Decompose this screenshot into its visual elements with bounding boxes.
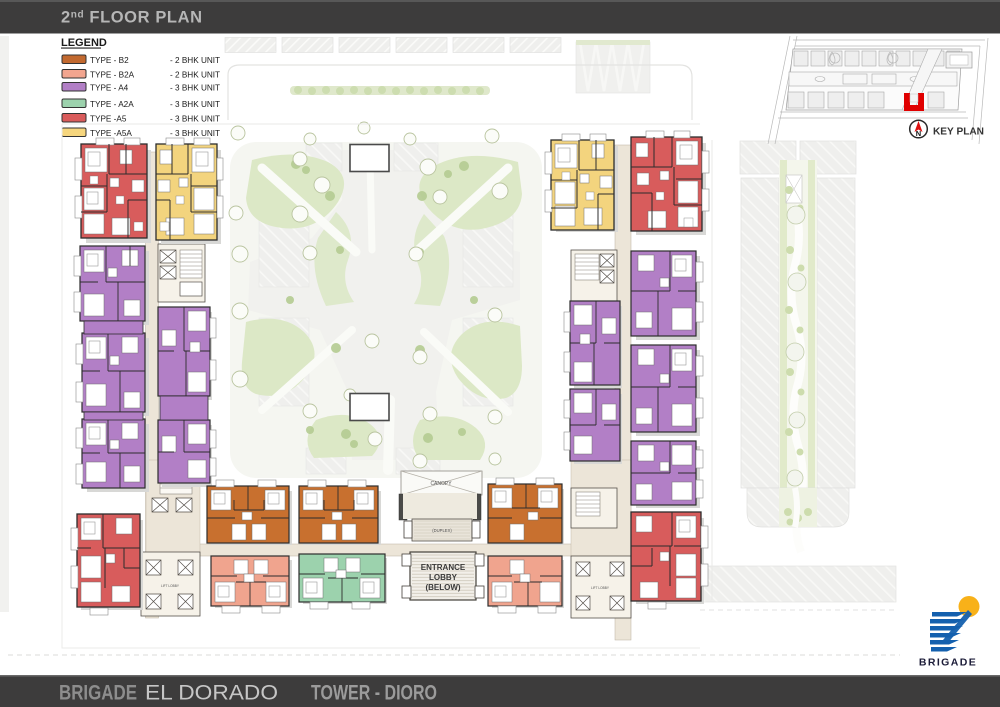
svg-text:- 3 BHK UNIT: - 3 BHK UNIT xyxy=(170,84,220,93)
svg-text:TYPE - B2A: TYPE - B2A xyxy=(90,71,135,80)
svg-text:LIFT LOBBY: LIFT LOBBY xyxy=(591,586,610,590)
svg-text:LEGEND: LEGEND xyxy=(61,37,107,49)
svg-text:BRIGADE: BRIGADE xyxy=(59,682,137,705)
svg-text:- 3 BHK UNIT: - 3 BHK UNIT xyxy=(170,100,220,109)
svg-text:- 3 BHK UNIT: - 3 BHK UNIT xyxy=(170,129,220,138)
svg-text:- 2 BHK UNIT: - 2 BHK UNIT xyxy=(170,56,220,65)
svg-text:CANOPY: CANOPY xyxy=(430,481,452,487)
svg-text:(DUPLEX): (DUPLEX) xyxy=(432,528,452,533)
svg-text:(BELOW): (BELOW) xyxy=(425,583,460,592)
svg-text:TYPE -A5: TYPE -A5 xyxy=(90,115,127,124)
svg-text:N: N xyxy=(916,129,921,138)
svg-text:TYPE - A4: TYPE - A4 xyxy=(90,84,129,93)
svg-text:EL DORADO: EL DORADO xyxy=(145,682,278,705)
svg-text:BRIGADE: BRIGADE xyxy=(919,657,977,669)
svg-text:- 3 BHK UNIT: - 3 BHK UNIT xyxy=(170,115,220,124)
svg-text:LOBBY: LOBBY xyxy=(429,573,458,582)
svg-text:KEY PLAN: KEY PLAN xyxy=(933,126,984,138)
svg-text:ENTRANCE: ENTRANCE xyxy=(421,563,466,572)
svg-text:LIFT LOBBY: LIFT LOBBY xyxy=(161,584,180,588)
svg-text:- 2 BHK UNIT: - 2 BHK UNIT xyxy=(170,71,220,80)
svg-text:TOWER - DIORO: TOWER - DIORO xyxy=(311,682,437,705)
svg-text:TYPE - B2: TYPE - B2 xyxy=(90,56,129,65)
svg-text:TYPE - A2A: TYPE - A2A xyxy=(90,100,134,109)
svg-text:TYPE -A5A: TYPE -A5A xyxy=(90,129,132,138)
